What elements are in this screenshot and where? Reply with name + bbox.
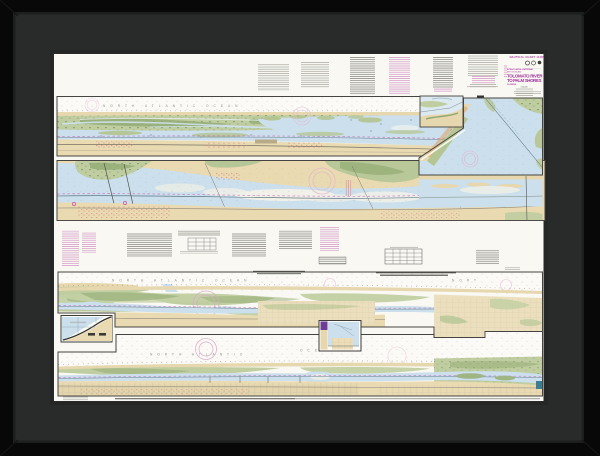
- svg-text:TO PALM SHORES: TO PALM SHORES: [507, 78, 542, 83]
- svg-text:NORTH ATLANTIC OCEAN: NORTH ATLANTIC OCEAN: [103, 104, 242, 108]
- svg-text:NORT: NORT: [452, 279, 481, 283]
- svg-text:NORTH ATLANTIC OCEAN: NORTH ATLANTIC OCEAN: [112, 279, 251, 283]
- svg-text:1:40,000: 1:40,000: [521, 87, 528, 89]
- svg-text:NAUTICAL CHART 11485: NAUTICAL CHART 11485: [510, 55, 545, 59]
- svg-text:FLORIDA: FLORIDA: [507, 83, 516, 86]
